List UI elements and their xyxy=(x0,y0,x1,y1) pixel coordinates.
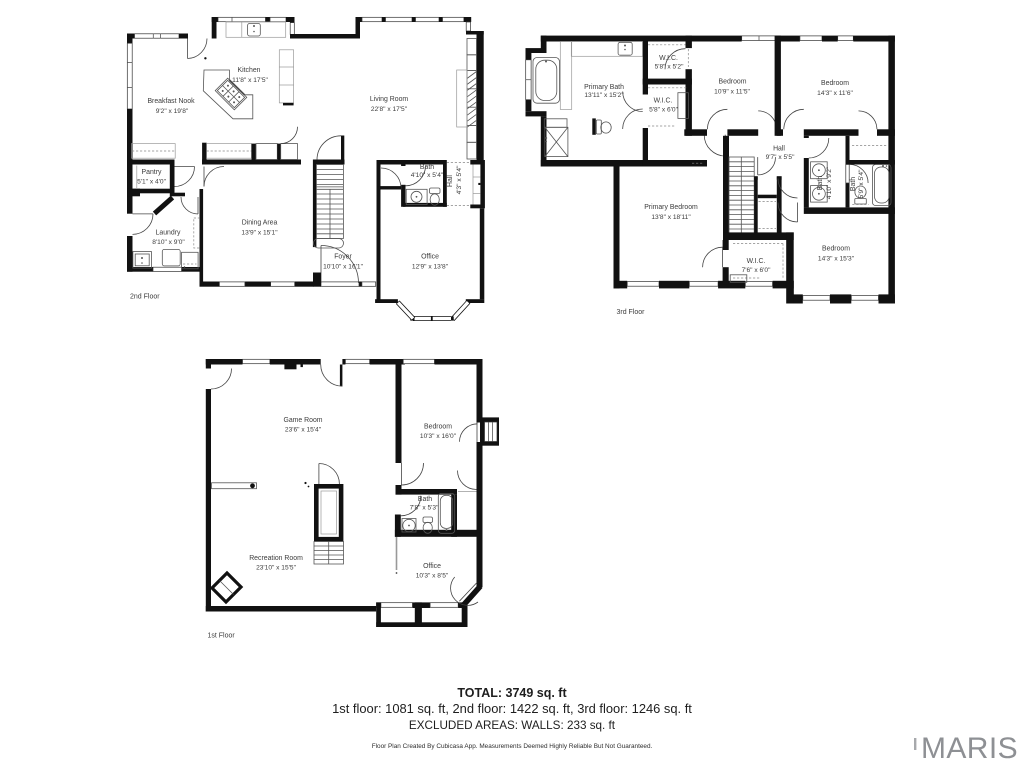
svg-text:W.I.C.: W.I.C. xyxy=(659,55,678,62)
svg-text:5'8" x 5'2": 5'8" x 5'2" xyxy=(655,64,684,71)
svg-text:2nd Floor: 2nd Floor xyxy=(130,294,160,301)
svg-text:Bedroom: Bedroom xyxy=(424,424,452,431)
svg-text:5'1" x 4'0": 5'1" x 4'0" xyxy=(137,179,166,186)
svg-text:Recreation Room: Recreation Room xyxy=(249,555,303,562)
svg-text:12'9" x 13'8": 12'9" x 13'8" xyxy=(412,264,449,271)
svg-text:14'3" x 11'6": 14'3" x 11'6" xyxy=(817,90,853,97)
svg-text:Kitchen: Kitchen xyxy=(238,67,261,74)
svg-text:Office: Office xyxy=(423,563,441,570)
svg-text:23'6" x 15'4": 23'6" x 15'4" xyxy=(285,427,322,434)
svg-text:Bath: Bath xyxy=(817,176,824,190)
svg-text:Primary Bedroom: Primary Bedroom xyxy=(644,204,698,211)
svg-text:5'9" x 5'4": 5'9" x 5'4" xyxy=(858,169,865,198)
svg-text:Office: Office xyxy=(421,254,439,261)
svg-text:W.I.C.: W.I.C. xyxy=(747,258,766,265)
svg-text:10'9" x 11'5": 10'9" x 11'5" xyxy=(714,89,750,96)
svg-text:3rd Floor: 3rd Floor xyxy=(617,309,646,316)
svg-text:10'10" x 16'1": 10'10" x 16'1" xyxy=(323,264,363,271)
svg-text:13'11" x 15'2": 13'11" x 15'2" xyxy=(584,92,624,99)
svg-text:11'8" x 17'5": 11'8" x 17'5" xyxy=(232,77,268,84)
svg-text:5'8" x 6'0": 5'8" x 6'0" xyxy=(649,107,678,114)
svg-text:Pantry: Pantry xyxy=(142,169,162,176)
svg-text:Laundry: Laundry xyxy=(156,230,181,237)
svg-text:10'3" x 8'5": 10'3" x 8'5" xyxy=(416,573,449,580)
svg-text:14'3" x 15'3": 14'3" x 15'3" xyxy=(818,256,855,263)
svg-text:TOTAL: 3749 sq. ft: TOTAL: 3749 sq. ft xyxy=(457,686,567,700)
svg-text:7'8" x 5'3": 7'8" x 5'3" xyxy=(410,505,439,512)
svg-text:Hall: Hall xyxy=(447,175,454,187)
svg-text:Living Room: Living Room xyxy=(370,96,409,103)
svg-text:Game Room: Game Room xyxy=(283,417,322,424)
svg-text:7'6" x 6'0": 7'6" x 6'0" xyxy=(742,267,771,274)
svg-text:8'10" x 9'0": 8'10" x 9'0" xyxy=(152,239,185,246)
svg-text:MARIS: MARIS xyxy=(921,732,1018,765)
svg-text:Breakfast Nook: Breakfast Nook xyxy=(147,98,195,105)
svg-text:1st Floor: 1st Floor xyxy=(208,633,236,640)
svg-text:Bath: Bath xyxy=(418,496,432,503)
svg-text:13'8" x 18'11": 13'8" x 18'11" xyxy=(651,214,691,221)
svg-text:10'3" x 16'0": 10'3" x 16'0" xyxy=(420,433,457,440)
svg-text:W.I.C.: W.I.C. xyxy=(654,98,673,105)
svg-text:Bedroom: Bedroom xyxy=(719,79,747,86)
svg-text:4'3" x 5'4": 4'3" x 5'4" xyxy=(456,165,463,194)
svg-text:4'10" x 5'4": 4'10" x 5'4" xyxy=(411,172,444,179)
svg-text:Bath: Bath xyxy=(420,164,434,171)
svg-text:Foyer: Foyer xyxy=(334,254,352,261)
svg-text:4'10" x 9'2": 4'10" x 9'2" xyxy=(826,166,833,199)
svg-text:Primary Bath: Primary Bath xyxy=(584,84,624,91)
svg-text:Floor Plan Created By Cubicasa: Floor Plan Created By Cubicasa App. Meas… xyxy=(372,743,653,750)
svg-text:1st floor: 1081 sq. ft, 2nd fl: 1st floor: 1081 sq. ft, 2nd floor: 1422 … xyxy=(332,701,692,716)
svg-text:Bath: Bath xyxy=(850,177,857,191)
svg-text:Dining Area: Dining Area xyxy=(242,220,278,227)
svg-text:9'2" x 19'8": 9'2" x 19'8" xyxy=(156,108,189,115)
svg-text:Hall: Hall xyxy=(773,146,785,153)
svg-text:23'10" x 15'5": 23'10" x 15'5" xyxy=(256,565,296,572)
svg-text:22'8" x 17'5": 22'8" x 17'5" xyxy=(371,106,408,113)
svg-text:Bedroom: Bedroom xyxy=(822,246,850,253)
svg-text:Bedroom: Bedroom xyxy=(821,80,849,87)
svg-text:9'7" x 5'5": 9'7" x 5'5" xyxy=(766,154,795,161)
svg-text:EXCLUDED AREAS: WALLS: 233 sq.: EXCLUDED AREAS: WALLS: 233 sq. ft xyxy=(409,719,616,732)
svg-text:13'9" x 15'1": 13'9" x 15'1" xyxy=(241,230,278,237)
